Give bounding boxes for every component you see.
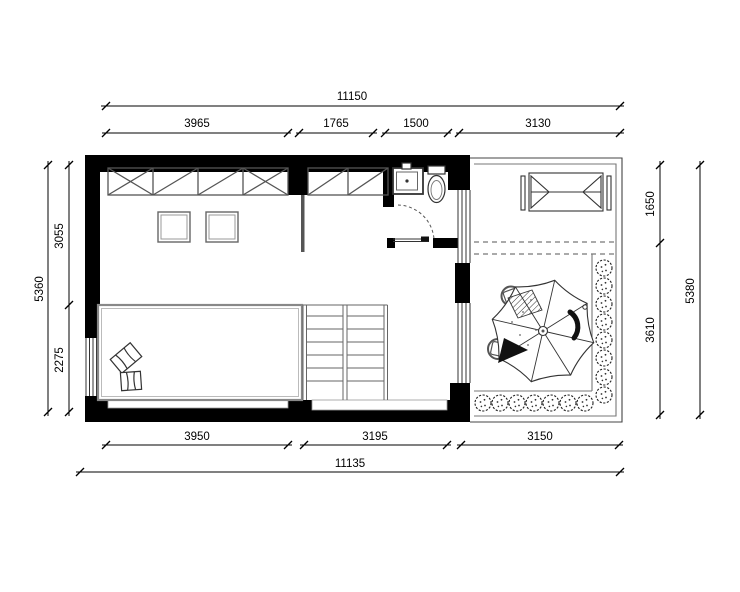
wardrobe-two-sections [308, 168, 388, 195]
floor-plan-drawing: 11150 3965 1765 1500 3130 3950 3195 3150… [0, 0, 740, 592]
dim-bottom-seg-0: 3950 [184, 431, 210, 443]
outdoor-table [521, 173, 611, 211]
dim-bottom-seg-1: 3195 [362, 431, 388, 443]
window-right-wall-lower [458, 303, 470, 383]
dim-top-overall: 11150 [337, 91, 367, 103]
dim-top-seg-1: 1765 [323, 118, 349, 130]
dim-top-seg-3: 3130 [525, 118, 551, 130]
wardrobe-pier [288, 155, 308, 195]
cushion-2 [120, 371, 141, 390]
toilet [428, 166, 445, 203]
dim-right-seg-0: 1650 [645, 191, 657, 217]
dim-left-overall: 5360 [34, 276, 46, 302]
dim-left-seg-1: 2275 [54, 347, 66, 373]
partition-screen [301, 195, 305, 252]
bottom-window-recess-right [312, 400, 447, 410]
square-stools [158, 212, 238, 242]
dim-right-overall: 5380 [685, 278, 697, 304]
stair-treads [307, 316, 385, 381]
dim-right-seg-1: 3610 [645, 317, 657, 343]
door-swing-arc [398, 205, 434, 239]
parasol-with-chairs [488, 280, 594, 381]
dim-bottom-overall: 11135 [335, 458, 365, 470]
dim-top-seg-2: 1500 [403, 118, 429, 130]
staircase [303, 305, 388, 400]
dim-top-seg-0: 3965 [184, 118, 210, 130]
bottom-window-recess-left [108, 400, 288, 408]
window-right-wall-upper [458, 190, 470, 263]
right-wall-pier-top [448, 155, 470, 190]
sink-vanity [393, 163, 423, 194]
bed-platform [98, 305, 302, 400]
bathroom [393, 163, 445, 242]
right-wall-pier-mid [455, 263, 470, 303]
dim-left-seg-0: 3055 [54, 223, 66, 249]
sliding-door [393, 237, 429, 242]
bathroom-bottom-wall [433, 238, 458, 248]
wardrobe-four-sections [108, 168, 288, 195]
parasol-pole-center [542, 330, 545, 333]
dim-bottom-seg-2: 3150 [527, 431, 553, 443]
floor-plan-canvas: 11150 3965 1765 1500 3130 3950 3195 3150… [0, 0, 740, 592]
right-wall-pier-bottom [450, 383, 470, 422]
